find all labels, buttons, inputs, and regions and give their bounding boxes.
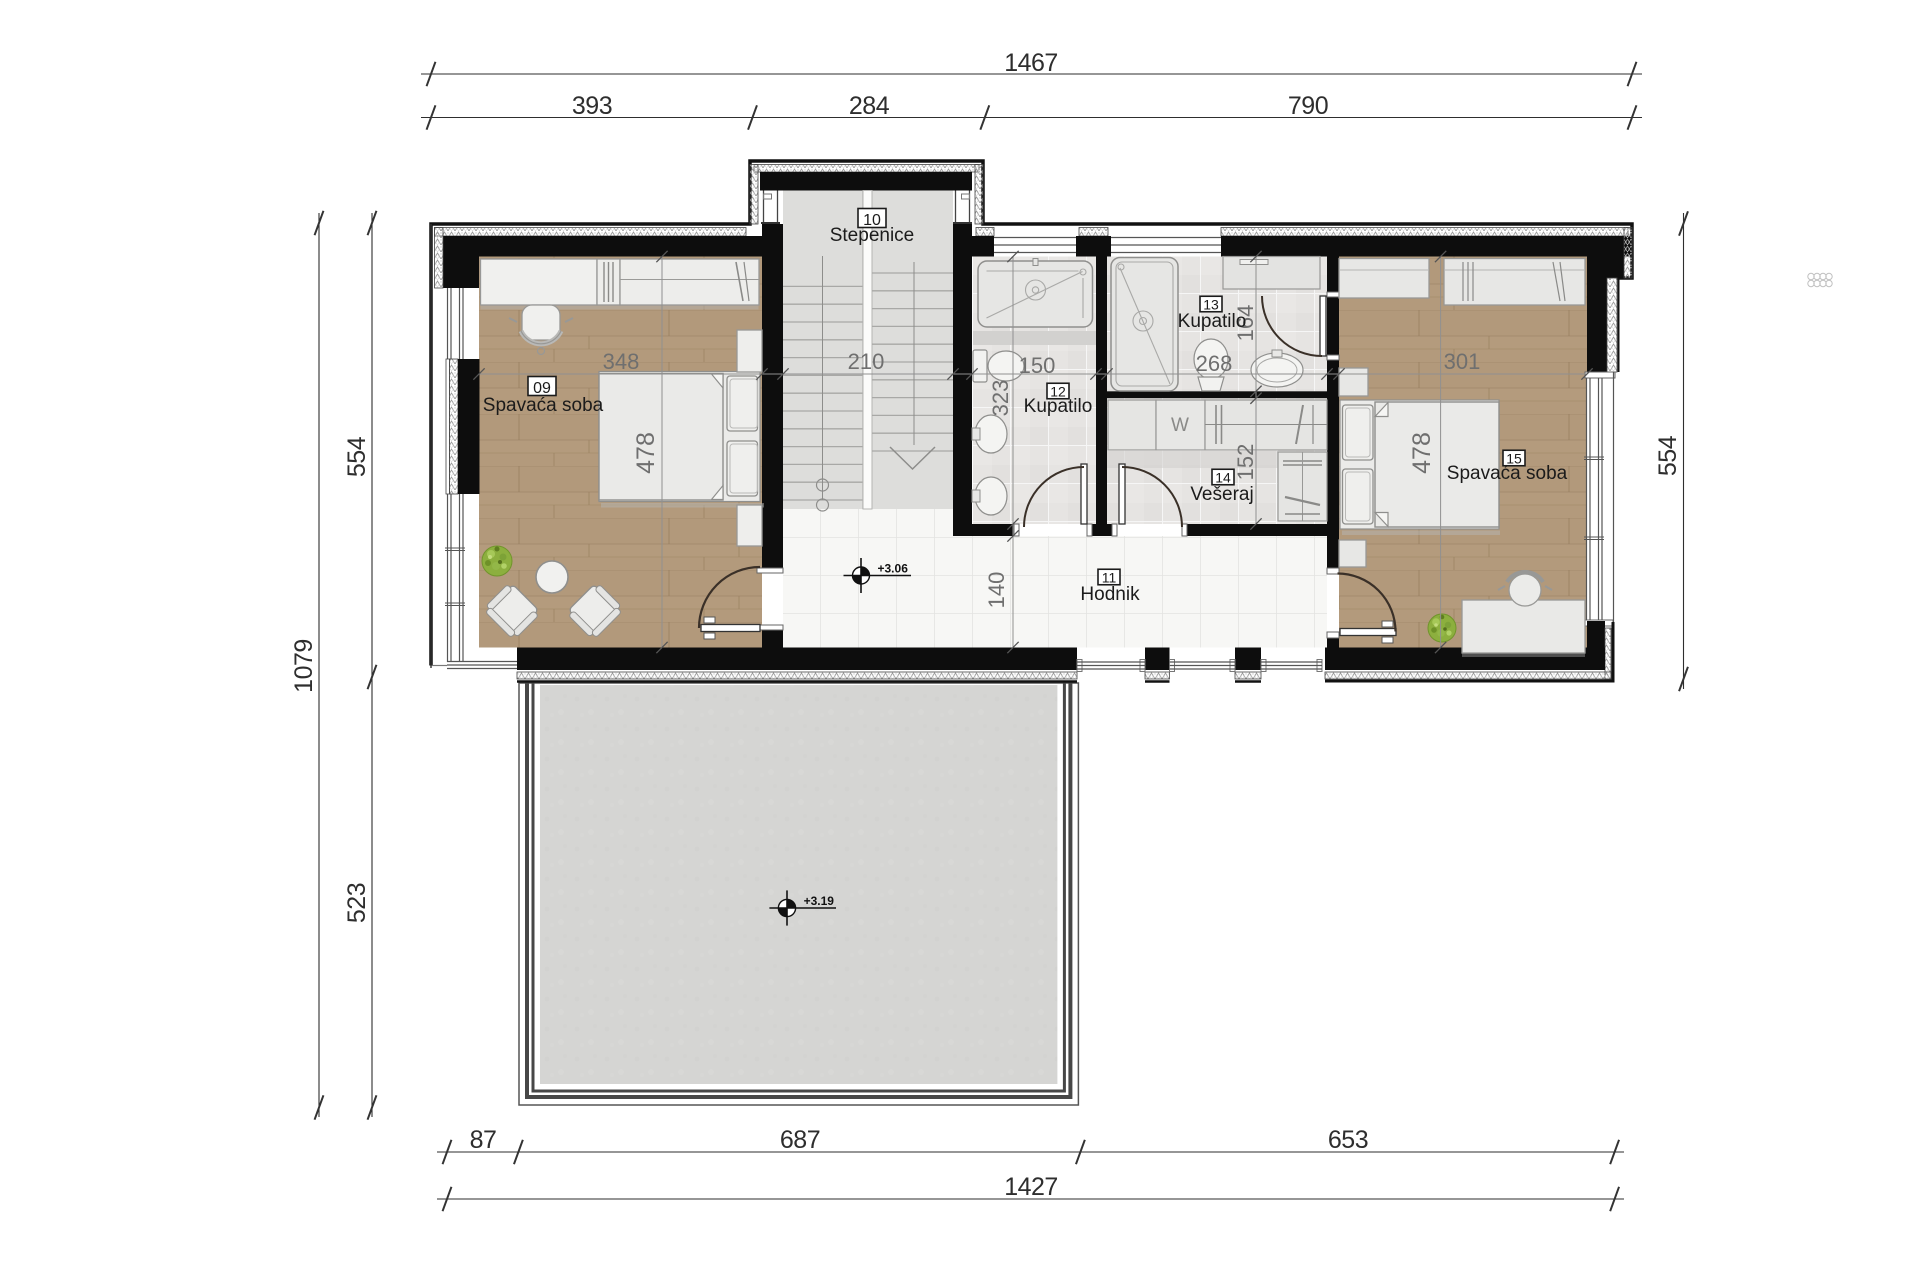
svg-text:1467: 1467 [1004, 49, 1058, 77]
svg-text:+3.19: +3.19 [804, 894, 835, 908]
svg-text:+3.06: +3.06 [878, 562, 909, 576]
svg-text:478: 478 [1408, 432, 1436, 474]
svg-text:1427: 1427 [1004, 1173, 1058, 1201]
svg-text:Hodnik: Hodnik [1080, 584, 1140, 605]
svg-text:150: 150 [1019, 353, 1056, 378]
svg-text:284: 284 [849, 92, 890, 120]
svg-text:140: 140 [984, 572, 1009, 609]
svg-text:152: 152 [1233, 444, 1258, 481]
svg-text:87: 87 [470, 1126, 497, 1154]
svg-text:554: 554 [1654, 435, 1682, 476]
svg-text:348: 348 [603, 349, 640, 374]
svg-text:478: 478 [632, 432, 660, 474]
svg-text:554: 554 [343, 436, 371, 477]
svg-text:790: 790 [1288, 92, 1328, 120]
svg-text:Spavaća soba: Spavaća soba [483, 395, 604, 416]
svg-text:11: 11 [1102, 569, 1117, 585]
svg-text:393: 393 [572, 92, 612, 120]
svg-text:14: 14 [1215, 469, 1231, 485]
svg-text:268: 268 [1196, 351, 1233, 376]
svg-text:Kupatilo: Kupatilo [1024, 396, 1093, 417]
svg-text:13: 13 [1203, 296, 1219, 312]
svg-text:Kupatilo: Kupatilo [1178, 311, 1247, 332]
svg-text:210: 210 [848, 349, 885, 374]
svg-text:1079: 1079 [290, 639, 318, 693]
svg-text:301: 301 [1444, 349, 1481, 374]
svg-text:523: 523 [343, 883, 371, 923]
svg-text:Spavaća soba: Spavaća soba [1447, 463, 1568, 484]
svg-text:Stepenice: Stepenice [830, 225, 915, 246]
svg-text:323: 323 [988, 380, 1013, 417]
svg-text:Vešeraj: Vešeraj [1190, 484, 1253, 505]
svg-text:W: W [1171, 415, 1189, 436]
svg-text:687: 687 [780, 1126, 820, 1154]
svg-text:653: 653 [1328, 1126, 1368, 1154]
